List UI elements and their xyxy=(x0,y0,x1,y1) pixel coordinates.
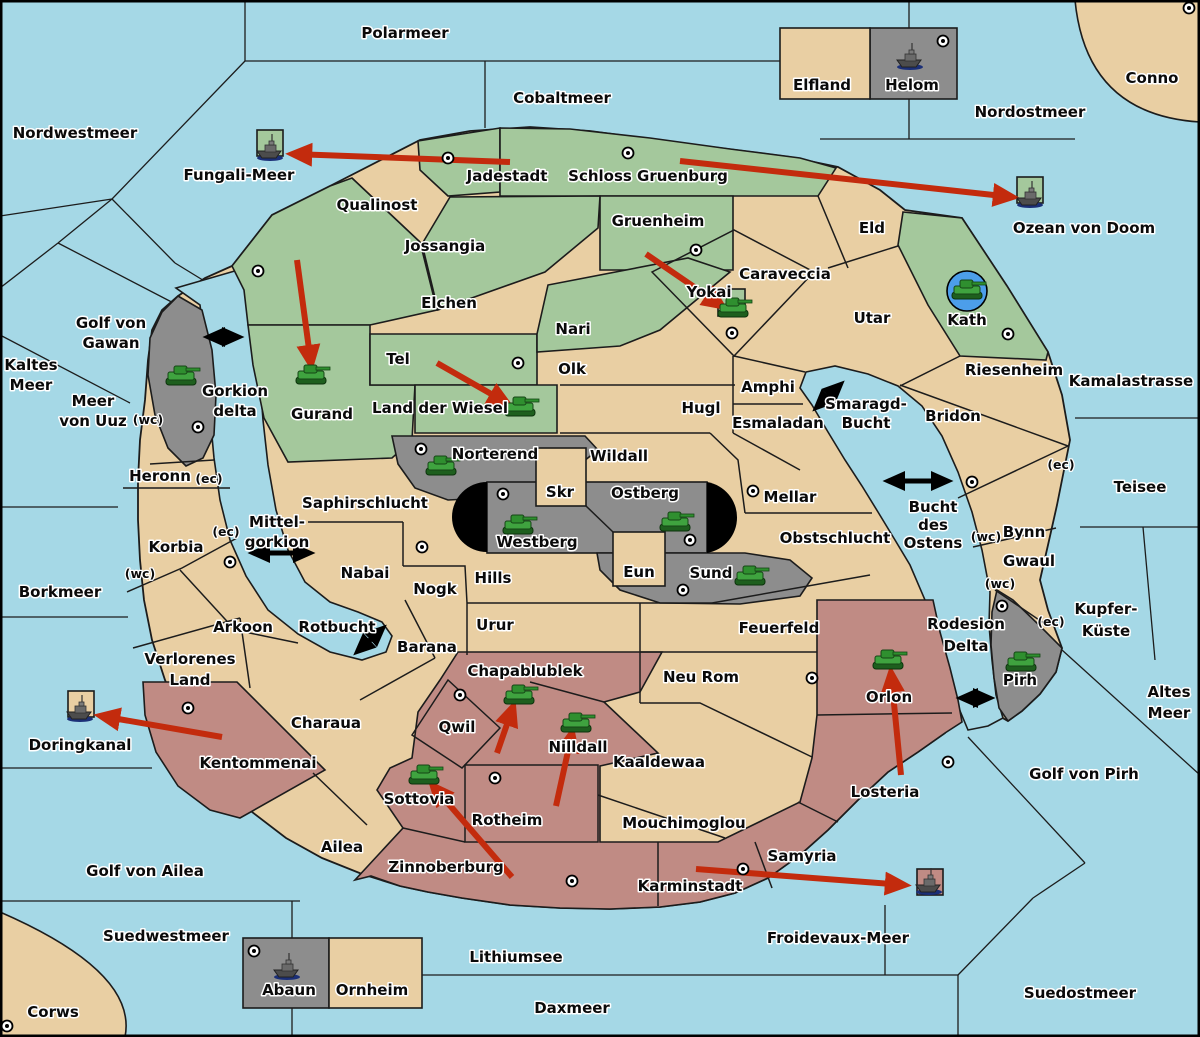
sea-label: Nordwestmeer xyxy=(13,124,138,142)
territory-label: Nabai xyxy=(341,564,390,582)
supply-marker xyxy=(738,864,749,875)
territory-label: Rotheim xyxy=(472,811,543,829)
territory-label: Conno xyxy=(1126,69,1179,87)
territory-label: Urur xyxy=(476,616,514,634)
supply-marker xyxy=(183,703,194,714)
territory-label: Mellar xyxy=(764,488,818,506)
region-code-label: (wc) xyxy=(971,529,1001,544)
territory-label: Elchen xyxy=(421,294,477,312)
supply-marker xyxy=(678,585,689,596)
territory-label: Westberg xyxy=(496,533,577,551)
supply-marker xyxy=(2,1021,13,1032)
territory-label: Hugl xyxy=(681,399,720,417)
game-map-canvas: PolarmeerCobaltmeerNordostmeerNordwestme… xyxy=(0,0,1200,1037)
supply-marker xyxy=(1184,3,1195,14)
supply-marker xyxy=(938,36,949,47)
sea-label: Froidevaux-Meer xyxy=(767,929,910,947)
territory-label: Nogk xyxy=(413,580,458,598)
territory-label: Land der Wiesel xyxy=(372,399,508,417)
territory-label: Olk xyxy=(558,360,587,378)
territory-label: Charaua xyxy=(291,714,361,732)
sea-label: Meer xyxy=(1148,704,1191,722)
territory-label: Orlon xyxy=(866,688,912,706)
region-code-label: (wc) xyxy=(125,566,155,581)
sea-label: Gawan xyxy=(82,334,139,352)
territory-label: Riesenheim xyxy=(965,361,1063,379)
territory-label: Kentommenai xyxy=(199,754,316,772)
territory-label: Utar xyxy=(854,309,891,327)
supply-marker xyxy=(513,358,524,369)
territory-label: Corws xyxy=(27,1003,79,1021)
territory-label: Norterend xyxy=(452,445,539,463)
territory-label: Zinnoberburg xyxy=(388,858,504,876)
territory-label: Mouchimoglou xyxy=(622,814,745,832)
territory-label: Arkoon xyxy=(213,618,273,636)
territory-label: Kaaldewaa xyxy=(613,753,705,771)
supply-marker xyxy=(417,542,428,553)
region-code-label: (ec) xyxy=(195,471,222,486)
territory-label: Skr xyxy=(546,483,575,501)
sea-label: gorkion xyxy=(245,533,310,551)
territory-label: Obstschlucht xyxy=(780,529,891,547)
sea-label: delta xyxy=(213,402,256,420)
sea-label: von Uuz xyxy=(59,412,127,430)
territory-label: Eld xyxy=(859,219,885,237)
supply-marker xyxy=(623,148,634,159)
territory-label: Abaun xyxy=(262,981,316,999)
sea-label: Lithiumsee xyxy=(469,948,562,966)
sea-label: Fungali-Meer xyxy=(184,166,295,184)
territory-label: Feuerfeld xyxy=(739,619,820,637)
sea-label: des xyxy=(918,516,948,534)
sea-label: Golf von xyxy=(76,314,146,332)
supply-marker xyxy=(1003,329,1014,340)
territory-label: Heronn xyxy=(129,467,191,485)
territory-label: Chapablublek xyxy=(467,662,583,680)
territory-label: Karminstadt xyxy=(638,877,743,895)
territory-label: Neu Rom xyxy=(663,668,739,686)
territory-gruenheim[interactable] xyxy=(600,196,733,270)
territory-label: Gruenheim xyxy=(612,212,705,230)
supply-marker xyxy=(691,245,702,256)
territory-label: Kath xyxy=(947,311,987,329)
supply-marker xyxy=(193,422,204,433)
territory-label: Gwaul xyxy=(1003,552,1055,570)
territory-label: Pirh xyxy=(1003,671,1037,689)
sea-label: Delta xyxy=(943,637,988,655)
sea-label: Altes xyxy=(1147,683,1190,701)
supply-marker xyxy=(967,477,978,488)
supply-marker xyxy=(443,153,454,164)
supply-marker xyxy=(727,328,738,339)
region-code-label: (ec) xyxy=(1037,614,1064,629)
territory-label: Sund xyxy=(690,564,733,582)
supply-marker xyxy=(455,690,466,701)
territory-label: Nari xyxy=(555,320,590,338)
sea-label: Küste xyxy=(1082,622,1130,640)
sea-label: Mittel- xyxy=(249,513,305,531)
supply-marker xyxy=(567,876,578,887)
territory-label: Korbia xyxy=(148,538,203,556)
sea-label: Teisee xyxy=(1114,478,1167,496)
sea-label: Ostens xyxy=(904,534,963,552)
sea-label: Suedostmeer xyxy=(1024,984,1137,1002)
sea-label: Rotbucht xyxy=(298,618,375,636)
territory-label: Eun xyxy=(623,563,655,581)
sea-label: Golf von Ailea xyxy=(86,862,204,880)
sea-label: Daxmeer xyxy=(534,999,610,1017)
supply-marker xyxy=(943,757,954,768)
territory-label: Ornheim xyxy=(336,981,408,999)
supply-marker xyxy=(416,444,427,455)
territory-label: Elfland xyxy=(793,76,851,94)
territory-label: Esmaladan xyxy=(732,414,824,432)
territory-label: Schloss Gruenburg xyxy=(568,167,728,185)
territory-label: Verlorenes xyxy=(144,650,235,668)
territory-label: Samyria xyxy=(768,847,837,865)
territory-label: Land xyxy=(169,671,210,689)
sea-label: Ozean von Doom xyxy=(1013,219,1155,237)
sea-label: Cobaltmeer xyxy=(513,89,611,107)
territory-label: Ostberg xyxy=(611,484,679,502)
supply-marker xyxy=(685,535,696,546)
sea-label: Suedwestmeer xyxy=(103,927,229,945)
territory-label: Yokai xyxy=(685,283,731,301)
territory-label: Saphirschlucht xyxy=(302,494,428,512)
sea-label: Borkmeer xyxy=(19,583,102,601)
sea-label: Nordostmeer xyxy=(975,103,1086,121)
territory-label: Losteria xyxy=(851,783,920,801)
sea-label: Doringkanal xyxy=(29,736,132,754)
sea-label: Bucht xyxy=(842,414,891,432)
territory-label: Amphi xyxy=(741,378,795,396)
region-code-label: (wc) xyxy=(985,576,1015,591)
sea-label: Kamalastrasse xyxy=(1069,372,1193,390)
territory-label: Qualinost xyxy=(337,196,418,214)
territory-label: Qwil xyxy=(439,718,476,736)
sea-label: Gorkion xyxy=(202,382,268,400)
territory-label: Bynn xyxy=(1003,523,1046,541)
territory-label: Gurand xyxy=(291,405,353,423)
supply-marker xyxy=(997,601,1008,612)
sea-label: Rodesion xyxy=(927,615,1005,633)
sea-label: Kupfer- xyxy=(1074,600,1137,618)
territory-label: Ailea xyxy=(321,838,363,856)
territory-label: Jadestadt xyxy=(466,167,548,185)
supply-marker xyxy=(490,773,501,784)
supply-marker xyxy=(498,489,509,500)
sea-label: Kaltes xyxy=(4,356,57,374)
region-code-label: (ec) xyxy=(212,524,239,539)
supply-marker xyxy=(807,673,818,684)
supply-marker xyxy=(748,486,759,497)
region-code-label: (wc) xyxy=(133,412,163,427)
region-code-label: (ec) xyxy=(1047,457,1074,472)
supply-marker xyxy=(249,946,260,957)
game-map-screen: PolarmeerCobaltmeerNordostmeerNordwestme… xyxy=(0,0,1200,1037)
supply-marker xyxy=(253,266,264,277)
territory-label: Barana xyxy=(397,638,457,656)
territory-label: Caraveccia xyxy=(739,265,831,283)
territory-label: Bridon xyxy=(925,407,981,425)
sea-label: Meer xyxy=(10,376,53,394)
territory-label: Helom xyxy=(885,76,939,94)
sea-label: Meer xyxy=(72,392,115,410)
territory-label: Nilldall xyxy=(548,738,607,756)
sea-label: Bucht xyxy=(909,498,958,516)
territory-label: Jossangia xyxy=(404,237,486,255)
sea-label: Smaragd- xyxy=(825,395,907,413)
sea-label: Golf von Pirh xyxy=(1029,765,1139,783)
supply-marker xyxy=(225,557,236,568)
sea-label: Polarmeer xyxy=(361,24,449,42)
territory-label: Sottovia xyxy=(384,790,455,808)
territory-label: Hills xyxy=(475,569,512,587)
territory-label: Wildall xyxy=(590,447,648,465)
tank-unit[interactable] xyxy=(947,271,987,311)
territory-label: Tel xyxy=(386,350,410,368)
